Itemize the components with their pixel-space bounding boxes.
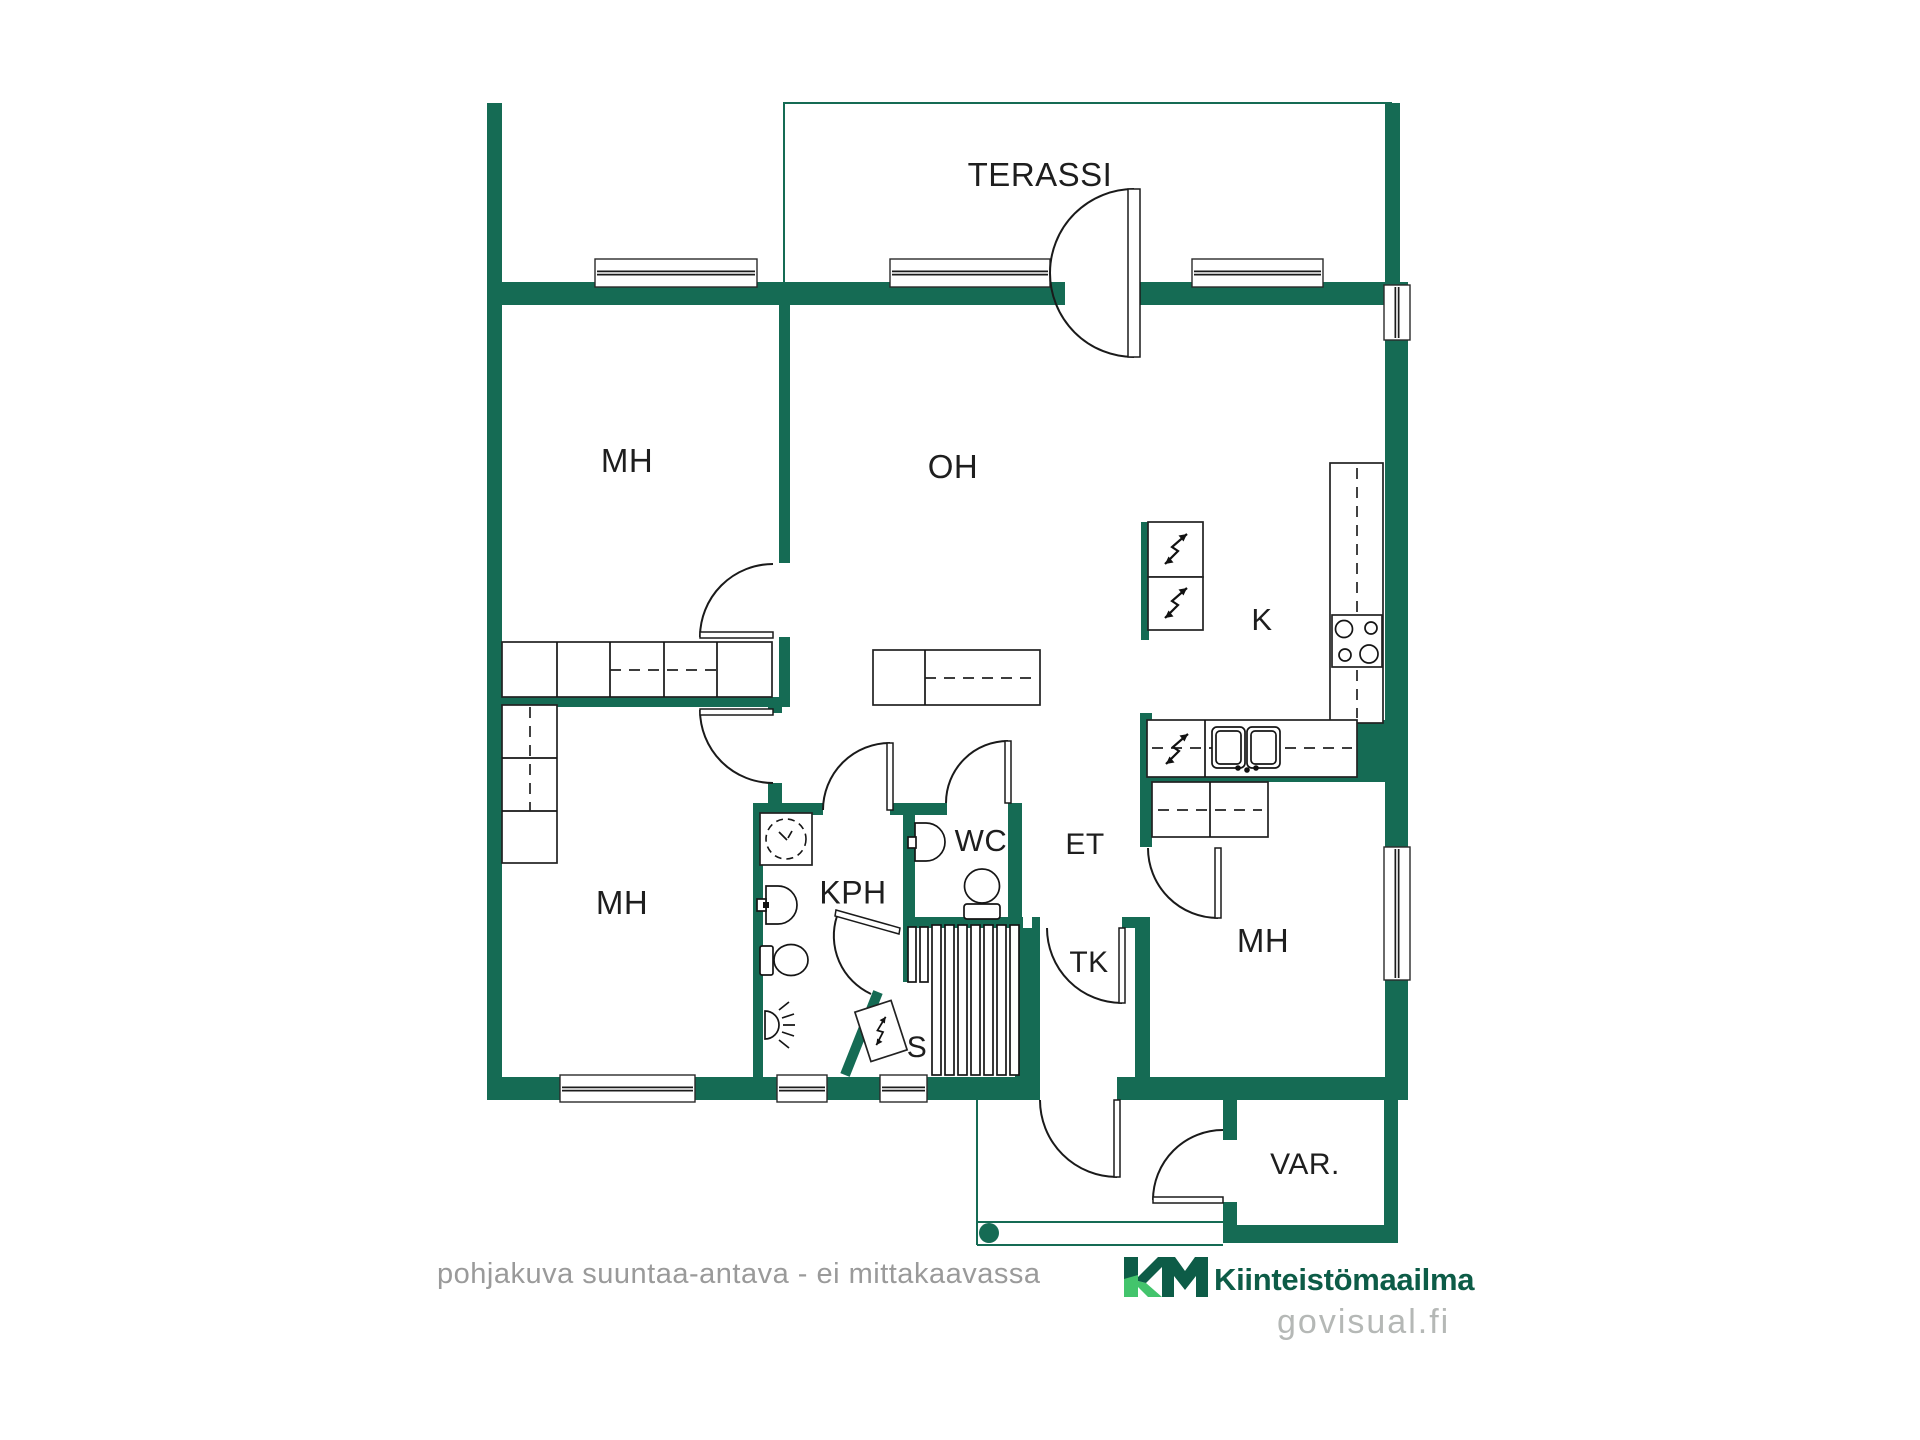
- brand-company-name: Kiinteistömaailma: [1214, 1262, 1474, 1298]
- km-logo-icon: KM: [1118, 1251, 1210, 1308]
- window: [1384, 847, 1410, 980]
- disclaimer-text: pohjakuva suuntaa-antava - ei mittakaava…: [437, 1258, 1040, 1291]
- toilet-kph-icon: [760, 945, 808, 976]
- door-sauna: [834, 910, 900, 994]
- toilet-wc-icon: [964, 869, 1000, 919]
- fridge-icon: [1148, 522, 1203, 577]
- washing-machine-icon: [760, 813, 812, 865]
- room-label-mh3: MH: [1237, 922, 1289, 960]
- light-icon: [765, 1002, 795, 1048]
- room-label-terassi: TERASSI: [968, 156, 1113, 194]
- room-label-et: ET: [1065, 828, 1104, 862]
- door-mh3: [1148, 848, 1221, 918]
- room-label-mh1: MH: [601, 442, 653, 480]
- cabinet-et: [1152, 782, 1268, 837]
- stove-icon: [1332, 615, 1382, 667]
- room-label-kph: KPH: [819, 875, 886, 912]
- room-label-s: S: [907, 1031, 928, 1065]
- room-label-var: VAR.: [1270, 1148, 1340, 1182]
- door-wc: [946, 741, 1011, 803]
- sideboard-oh: [873, 650, 1040, 705]
- door-kph: [823, 743, 893, 810]
- door-terrace: [1050, 189, 1140, 357]
- floorplan-canvas: TERASSI MH OH K MH KPH WC ET TK S MH VAR…: [0, 0, 1920, 1440]
- room-label-wc: WC: [955, 823, 1008, 859]
- watermark-text: govisual.fi: [1277, 1303, 1450, 1342]
- window: [890, 259, 1050, 287]
- room-label-tk: TK: [1069, 946, 1108, 980]
- door-var: [1153, 1130, 1223, 1203]
- freezer-icon: [1148, 577, 1203, 630]
- room-label-mh2: MH: [596, 884, 648, 922]
- wardrobe-mh2: [502, 705, 557, 863]
- floorplan-drawing: [0, 0, 1920, 1440]
- window: [1192, 259, 1323, 287]
- room-label-k: K: [1251, 602, 1272, 638]
- room-label-oh: OH: [928, 448, 979, 486]
- window: [595, 259, 757, 287]
- window: [880, 1075, 927, 1102]
- entrance-marker: [979, 1223, 999, 1243]
- window: [560, 1075, 695, 1102]
- door-front: [1040, 1100, 1120, 1177]
- sauna-heater-icon: [855, 1000, 907, 1061]
- entrance-walkway: [977, 1100, 1223, 1245]
- door-mh1: [700, 564, 773, 638]
- window: [777, 1075, 827, 1102]
- window: [1384, 285, 1410, 340]
- door-mh2: [700, 709, 773, 783]
- wardrobe-mh1: [502, 642, 772, 697]
